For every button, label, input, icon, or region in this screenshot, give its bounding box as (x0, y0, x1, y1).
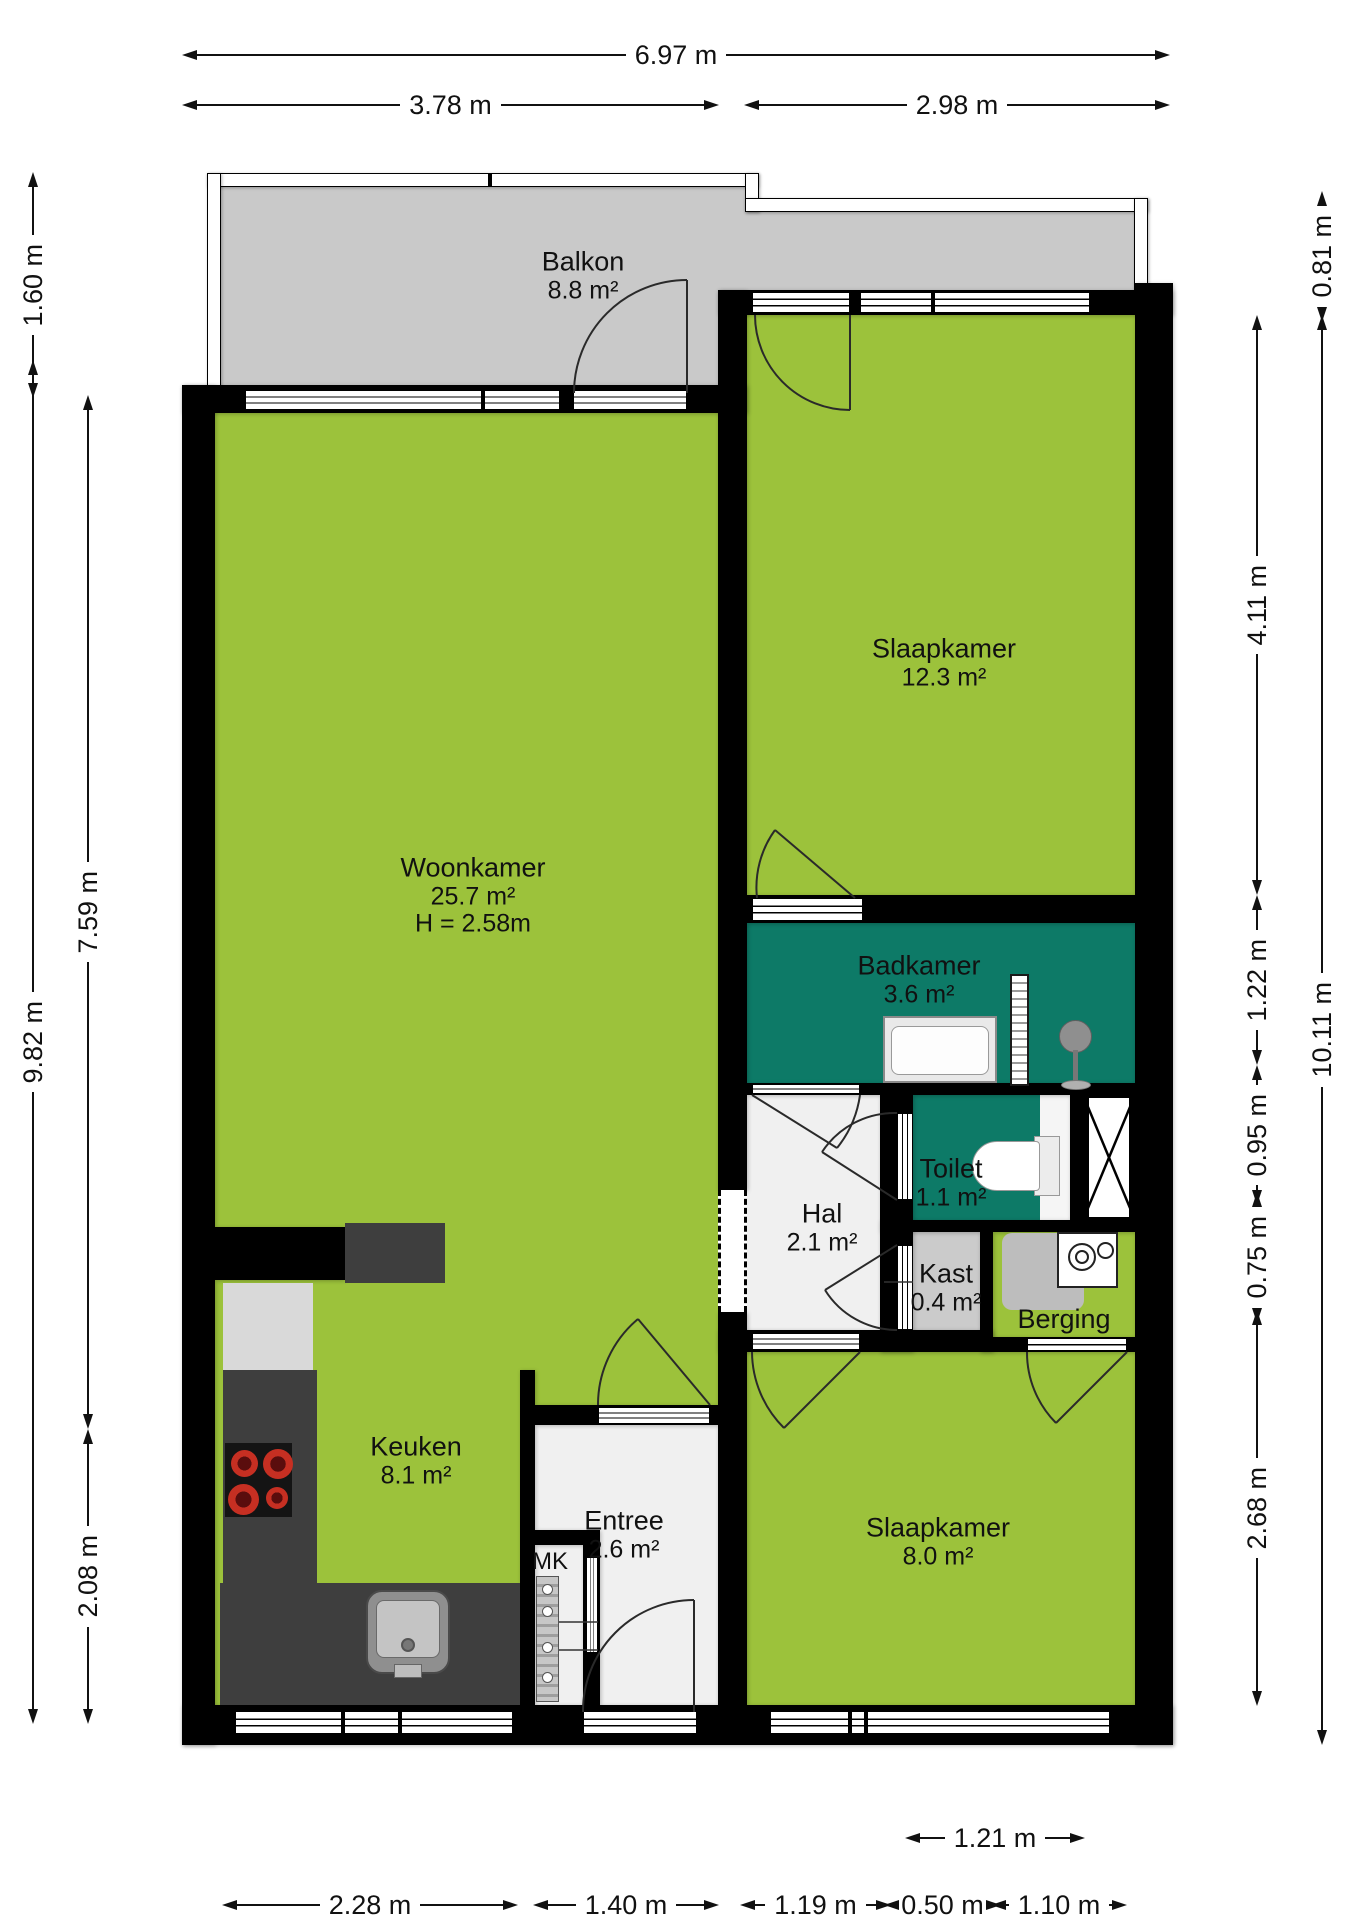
door-meterkast (586, 1557, 598, 1653)
door-berging-slaapkamer2 (1027, 1338, 1127, 1351)
dim-bottom-window: 1.21 m (905, 1821, 1085, 1855)
room-name: Keuken (370, 1432, 462, 1462)
window-mullion (398, 1711, 402, 1734)
label-berging: Berging (1017, 1305, 1110, 1335)
room-name: Hal (787, 1199, 858, 1229)
dim-value: 4.11 m (1242, 556, 1273, 655)
stove-burner (263, 1449, 293, 1479)
dim-top-total: 6.97 m (182, 38, 1170, 72)
window-mullion (864, 1711, 868, 1734)
opening-woonkamer-hal (718, 1190, 747, 1312)
dim-right-balcony: 0.81 m (1305, 198, 1339, 315)
kitchen-cabinet-light (223, 1283, 313, 1370)
label-entree: Entree 2.6 m² (584, 1506, 664, 1563)
meter-dial (542, 1672, 553, 1683)
window-mullion (931, 292, 935, 313)
arrow-left-icon (182, 50, 197, 60)
room-area: 2.1 m² (787, 1229, 858, 1257)
balcony-floor-right (750, 212, 1136, 290)
door-woonkamer-balcony (573, 390, 687, 410)
window-slaapkamer1 (860, 292, 1090, 313)
kitchen-counter-peninsula (345, 1223, 445, 1283)
wall-keuken-peninsula (215, 1227, 345, 1280)
room-area: 12.3 m² (872, 664, 1016, 692)
railing-mullion (488, 173, 492, 187)
dim-value: 2.98 m (907, 90, 1008, 121)
window-mullion (481, 390, 485, 410)
label-woonkamer: Woonkamer 25.7 m² H = 2.58m (400, 854, 545, 939)
room-area: 3.6 m² (857, 981, 980, 1009)
room-name: Badkamer (857, 951, 980, 981)
room-name: Balkon (542, 247, 625, 277)
dim-value: 1.10 m (1009, 1890, 1110, 1921)
dim-bottom-closet: 0.50 m (899, 1888, 986, 1922)
dim-bottom-hall: 1.19 m (740, 1888, 891, 1922)
window-mullion (341, 1711, 345, 1734)
room-area: 8.0 m² (866, 1543, 1010, 1571)
dim-value: 2.08 m (73, 1526, 104, 1627)
wall-entree-left (520, 1370, 535, 1705)
dim-right-storage: 0.75 m (1240, 1205, 1274, 1310)
dim-bottom-storage: 1.10 m (991, 1888, 1127, 1922)
room-name: Kast (911, 1259, 982, 1289)
wall-toilet-bottom (880, 1220, 1135, 1232)
dim-left-upper: 7.59 m (71, 395, 105, 1429)
dim-right-bedroom2: 2.68 m (1240, 1310, 1274, 1706)
dim-left-lower: 2.08 m (71, 1429, 105, 1724)
sink-faucet (394, 1664, 422, 1678)
dim-right-bathroom: 1.22 m (1240, 895, 1274, 1065)
dim-bottom-kitchen: 2.28 m (222, 1888, 518, 1922)
room-name: Toilet (916, 1154, 987, 1184)
door-hal-slaapkamer2 (752, 1333, 860, 1350)
dim-value: 0.50 m (899, 1890, 986, 1921)
wall-divider-upper (718, 290, 747, 1190)
stove-burner (231, 1450, 258, 1477)
shower-base (1061, 1080, 1091, 1090)
label-keuken: Keuken 8.1 m² (370, 1432, 462, 1489)
shaft (1083, 1095, 1135, 1220)
wall-divider-lower (718, 1312, 747, 1705)
washing-machine-dial (1097, 1242, 1114, 1259)
balcony-floor-left (219, 187, 750, 393)
dim-value: 1.19 m (765, 1890, 866, 1921)
room-area: 8.8 m² (542, 277, 625, 305)
arrow-right-icon (1155, 50, 1170, 60)
meter-dial (542, 1606, 553, 1617)
meter-dial (542, 1584, 553, 1595)
radiator (1010, 974, 1029, 1086)
label-badkamer: Badkamer 3.6 m² (857, 951, 980, 1008)
dim-value: 1.22 m (1242, 930, 1273, 1031)
label-slaapkamer-2: Slaapkamer 8.0 m² (866, 1513, 1010, 1570)
door-badkamer-hal (752, 1084, 860, 1094)
dim-right-bedroom1: 4.11 m (1240, 315, 1274, 895)
room-name: Slaapkamer (866, 1513, 1010, 1543)
wall-niche-shaft (1070, 1095, 1083, 1220)
dim-top-left: 3.78 m (182, 88, 719, 122)
dim-value: 1.21 m (945, 1823, 1046, 1854)
label-balkon: Balkon 8.8 m² (542, 247, 625, 304)
bathtub-basin (891, 1026, 989, 1075)
room-area: 0.4 m² (911, 1289, 982, 1317)
dim-value: 3.78 m (400, 90, 501, 121)
room-name: Entree (584, 1506, 664, 1536)
dim-right-total: 10.11 m (1305, 315, 1339, 1745)
room-name: MK (532, 1549, 568, 1575)
dim-value: 0.75 m (1242, 1207, 1273, 1308)
dim-bottom-entrance: 1.40 m (533, 1888, 719, 1922)
label-slaapkamer-1: Slaapkamer 12.3 m² (872, 634, 1016, 691)
dim-top-right: 2.98 m (744, 88, 1170, 122)
washing-machine-drum (1068, 1243, 1096, 1271)
shower-stem (1073, 1050, 1078, 1083)
balcony-railing-right (1134, 198, 1148, 290)
label-meterkast: MK (532, 1549, 568, 1575)
room-ceiling-height: H = 2.58m (400, 911, 545, 939)
shower-head (1059, 1020, 1092, 1053)
wall-right (1135, 283, 1173, 1745)
dim-value: 7.59 m (73, 862, 104, 963)
room-area: 8.1 m² (370, 1462, 462, 1490)
label-kast: Kast 0.4 m² (911, 1259, 982, 1316)
room-name: Slaapkamer (872, 634, 1016, 664)
label-hal: Hal 2.1 m² (787, 1199, 858, 1256)
door-front (583, 1711, 697, 1734)
dim-value: 1.60 m (18, 235, 49, 336)
dim-value: 2.28 m (320, 1890, 421, 1921)
meter-dial (542, 1642, 553, 1653)
room-slaapkamer-1 (747, 315, 1135, 895)
stove-burner (228, 1484, 259, 1515)
dim-value: 1.40 m (576, 1890, 677, 1921)
dim-value: 10.11 m (1307, 973, 1338, 1087)
dim-value: 0.95 m (1242, 1085, 1273, 1186)
door-entree-woonkamer (598, 1407, 710, 1424)
window-woonkamer (245, 390, 560, 410)
dim-value: 0.81 m (1307, 206, 1338, 307)
dim-left-total: 9.82 m (16, 360, 50, 1724)
room-area: 1.1 m² (916, 1184, 987, 1212)
dim-right-toilet: 0.95 m (1240, 1065, 1274, 1205)
door-toilet (897, 1113, 913, 1200)
dim-value: 6.97 m (626, 40, 727, 71)
balcony-railing-top-right (745, 198, 1148, 212)
balcony-railing-top-left (207, 173, 758, 187)
room-area: 2.6 m² (584, 1536, 664, 1564)
room-name: Berging (1017, 1305, 1110, 1335)
window-keuken (235, 1711, 513, 1734)
stove-burner (266, 1487, 288, 1509)
sink-drain (401, 1638, 415, 1652)
dim-value: 2.68 m (1242, 1458, 1273, 1559)
room-area: 25.7 m² (400, 883, 545, 911)
door-slaapkamer1-balcony (752, 292, 850, 313)
door-slaapkamer1-badkamer (752, 898, 863, 921)
label-toilet: Toilet 1.1 m² (916, 1154, 987, 1211)
window-slaapkamer2 (770, 1711, 1110, 1734)
wall-left (182, 385, 215, 1745)
room-name: Woonkamer (400, 854, 545, 884)
window-mullion (848, 1711, 852, 1734)
floor-plan: Balkon 8.8 m² Woonkamer 25.7 m² H = 2.58… (0, 0, 1358, 1920)
dim-value: 9.82 m (18, 992, 49, 1093)
balcony-railing-left (207, 173, 221, 387)
